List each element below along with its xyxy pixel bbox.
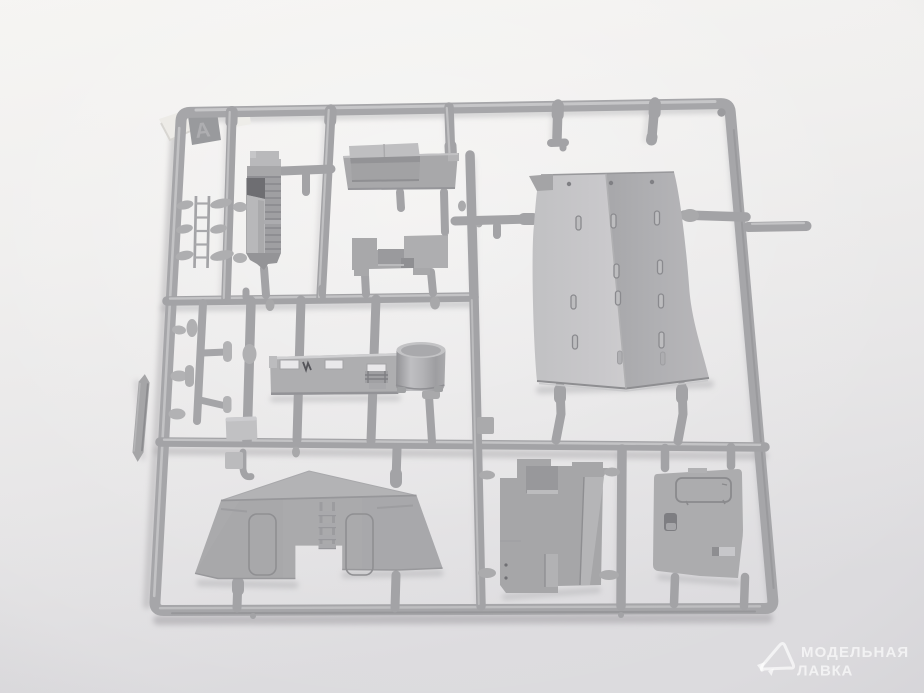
svg-text:ЛАВКА: ЛАВКА xyxy=(797,663,853,680)
svg-text:A: A xyxy=(194,118,212,143)
svg-text:МОДЕЛЬНАЯ: МОДЕЛЬНАЯ xyxy=(801,644,909,661)
